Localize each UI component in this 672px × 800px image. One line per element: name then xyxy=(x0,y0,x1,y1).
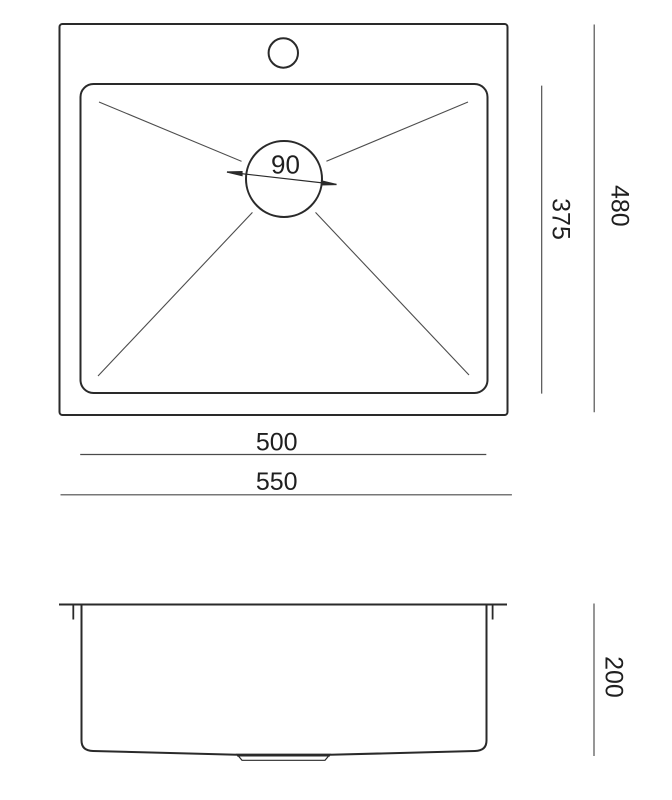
svg-text:480: 480 xyxy=(606,185,634,227)
svg-text:200: 200 xyxy=(600,656,628,698)
svg-text:90: 90 xyxy=(271,150,300,180)
svg-text:550: 550 xyxy=(256,468,298,496)
svg-text:500: 500 xyxy=(256,429,298,457)
svg-text:375: 375 xyxy=(547,198,575,240)
